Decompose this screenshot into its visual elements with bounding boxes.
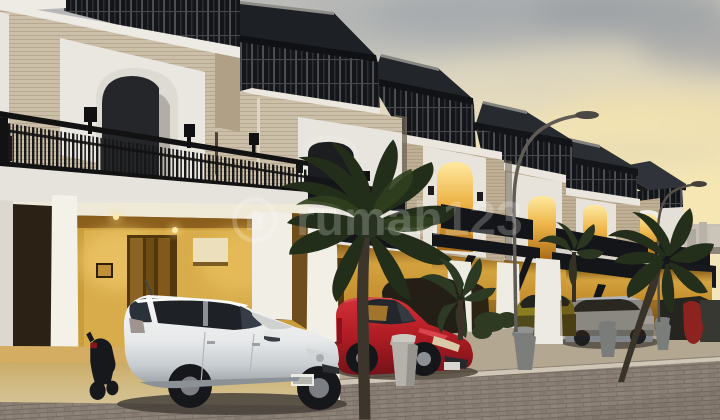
svg-text:rumah123: rumah123: [296, 193, 523, 246]
